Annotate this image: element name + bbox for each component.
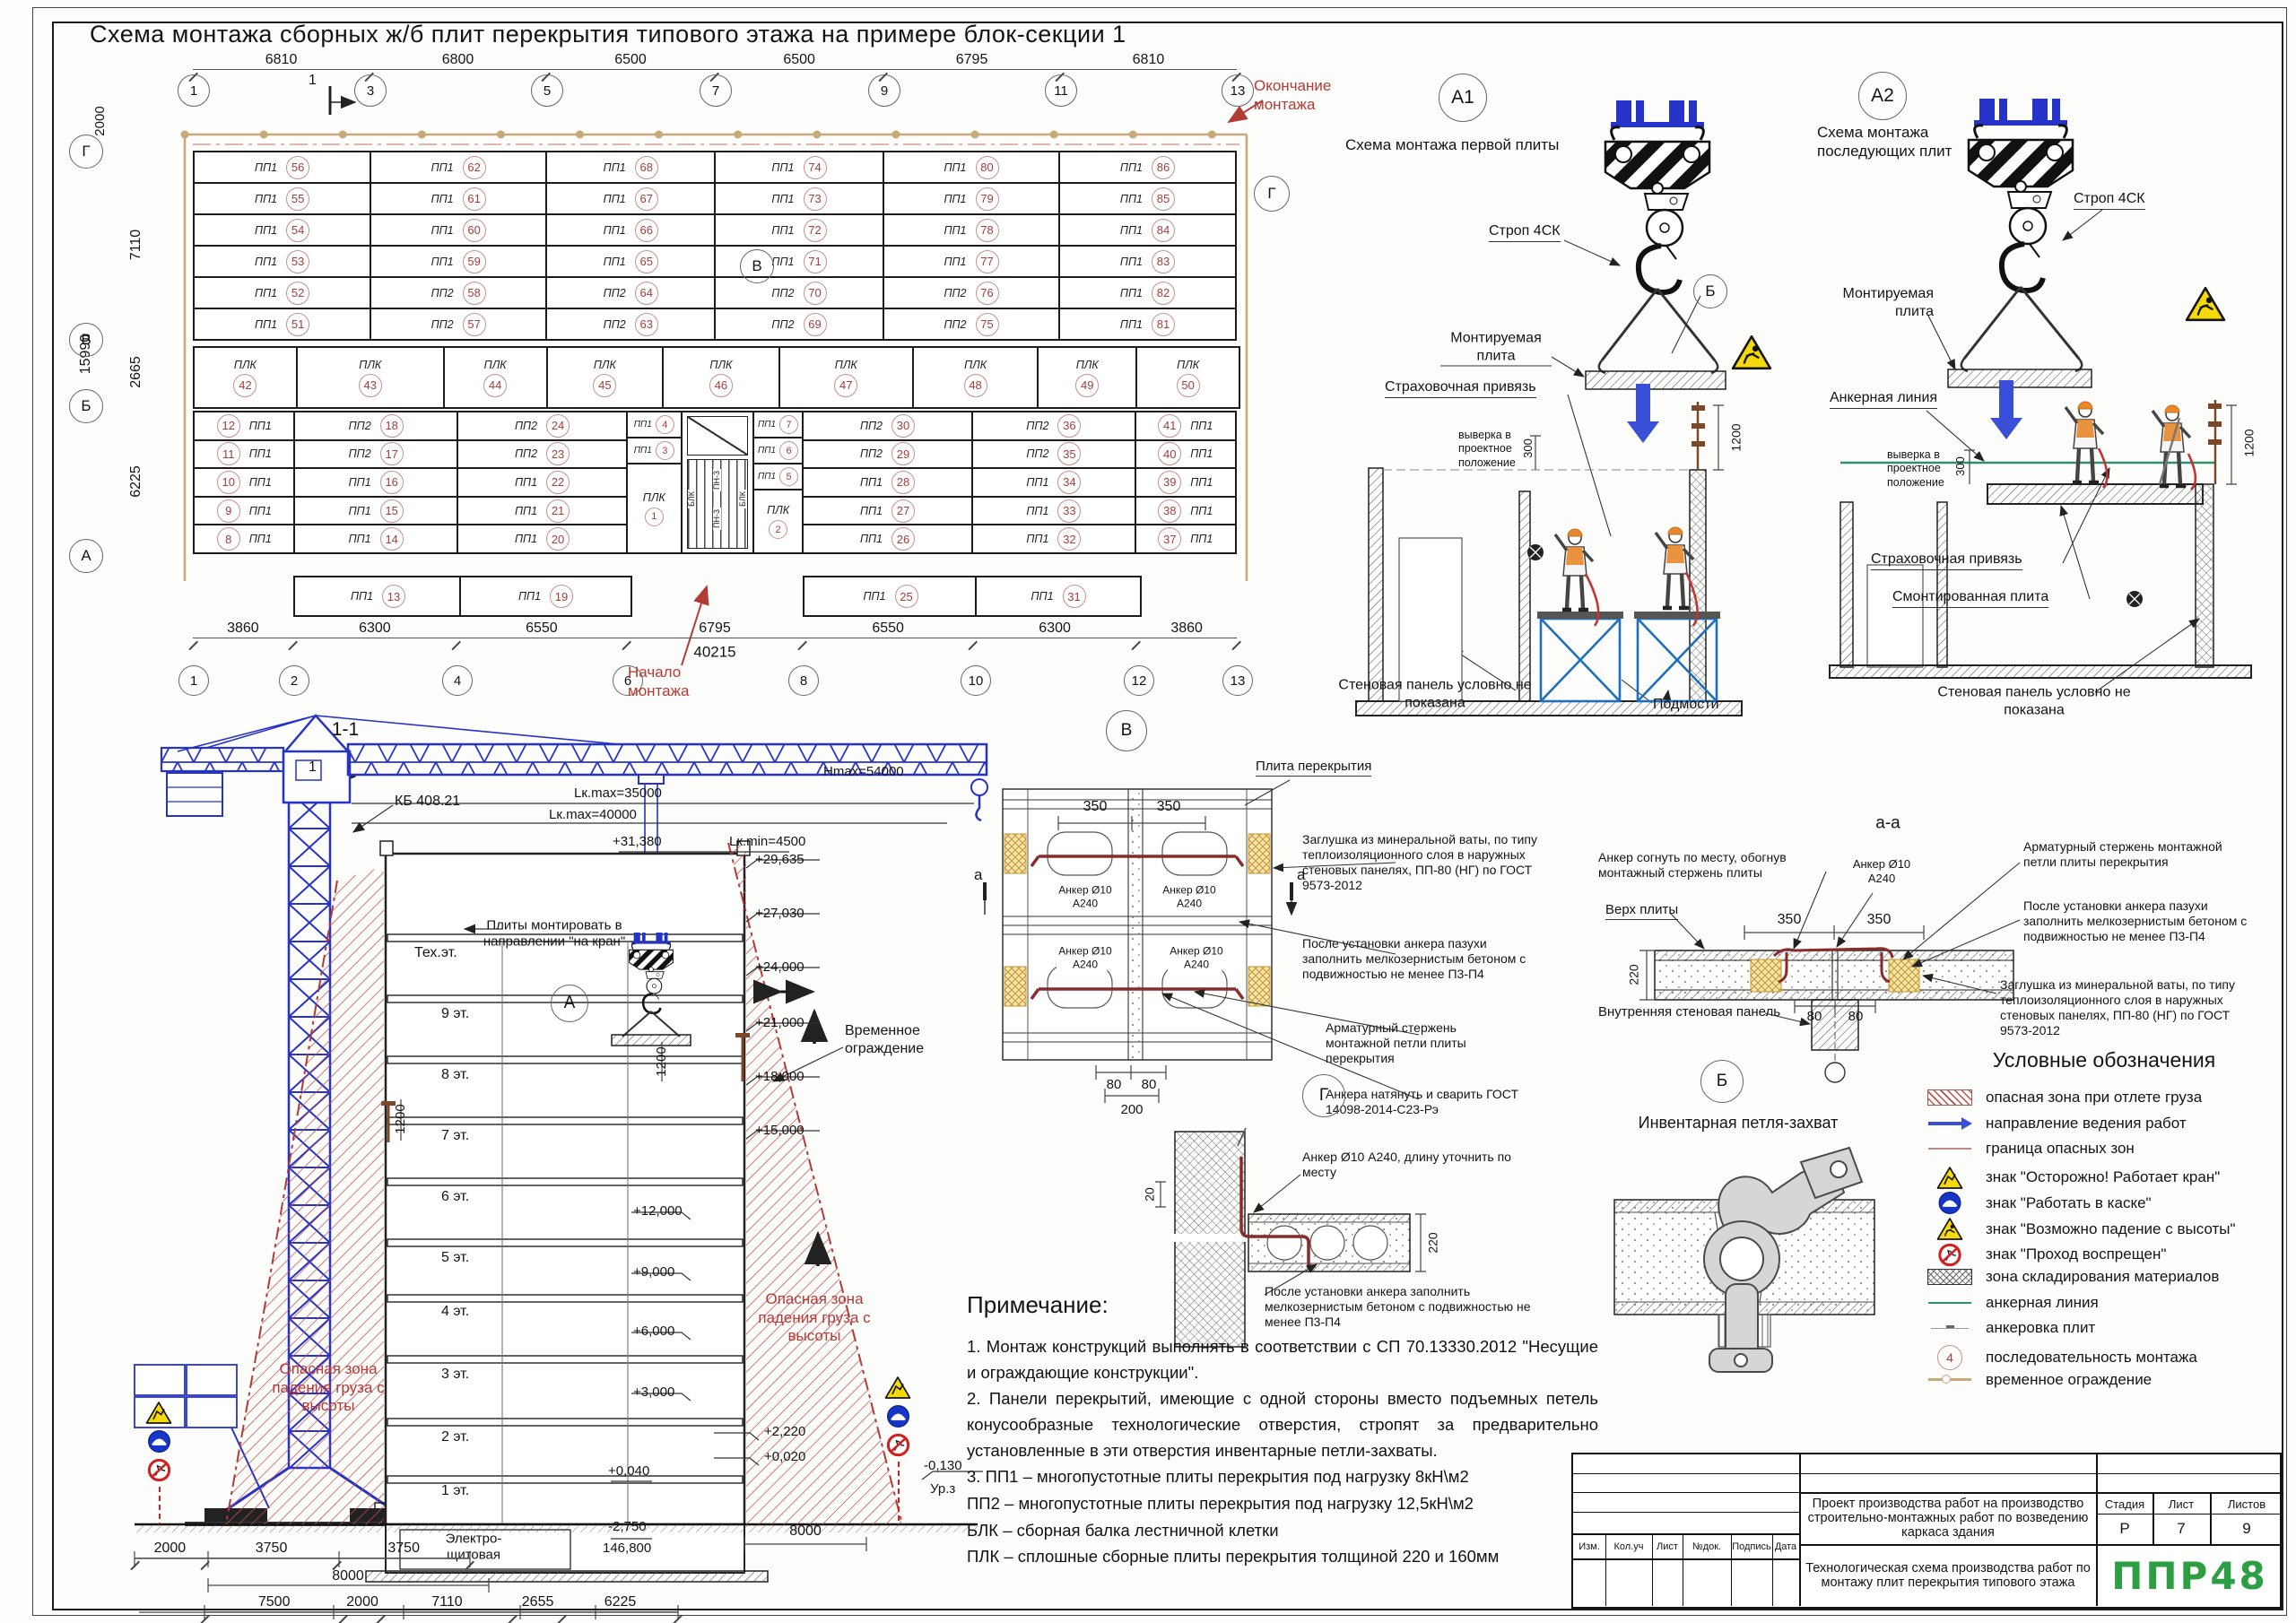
- slab-mark: ПП2: [515, 447, 537, 460]
- slab-mark: ПП1: [1120, 287, 1143, 299]
- dim-350-left: 350: [1083, 798, 1108, 816]
- legend-item: опасная зона при отлете груза: [1925, 1089, 2287, 1107]
- aa-plug-note: Заглушка из минеральной ваты, по типу те…: [2000, 977, 2244, 1038]
- revision-header: №док.: [1683, 1535, 1731, 1558]
- slab-number: 61: [463, 187, 486, 211]
- slab-mark: ПП1: [518, 590, 541, 603]
- line-red-icon: [1925, 1148, 1975, 1150]
- slab-number: 6: [779, 441, 798, 460]
- slab-strip: 41ПП1: [1136, 412, 1235, 439]
- slab-number: 64: [635, 282, 658, 305]
- slab-strip: ПП166: [547, 213, 714, 245]
- slab-number: 9: [217, 499, 240, 523]
- aa-rod-note: Арматурный стержень монтажной петли плит…: [2023, 839, 2249, 870]
- dimension: 2000: [135, 1541, 205, 1558]
- slab-strip: ПП229: [804, 439, 971, 468]
- legend-label: последовательность монтажа: [1986, 1349, 2197, 1367]
- a1-dim-300: 300: [1521, 438, 1535, 458]
- elevation-right: +18,000: [755, 1069, 804, 1085]
- aa-dim-350-left: 350: [1778, 911, 1802, 929]
- slab-number: 69: [804, 313, 827, 336]
- plan-top-column: ПП168ПП167ПП166ПП165ПП264ПП263: [545, 151, 716, 341]
- elevation-inner: +9,000: [633, 1264, 674, 1280]
- legend-label: анкерная линия: [1986, 1294, 2099, 1312]
- slab-strip: ПП131: [977, 585, 1140, 608]
- anchor-label-1: Анкер Ø10 А240: [1057, 883, 1114, 909]
- slab-number: 51: [286, 313, 309, 336]
- slab-strip: 37ПП1: [1136, 524, 1235, 552]
- a2-mounted-label: Смонтированная плита: [1892, 588, 2048, 608]
- slab-strip: ПП178: [884, 213, 1059, 245]
- row-bubble-g: Г: [69, 135, 103, 169]
- section-dims-row2: 75002000711026556225: [204, 1594, 678, 1612]
- slab-number: 55: [286, 187, 309, 211]
- slab-mark: ПП2: [431, 318, 454, 331]
- slab-number: 18: [380, 414, 404, 438]
- drawing-sheet: Схема монтажа сборных ж/б плит перекрыти…: [0, 0, 2296, 1623]
- plan-bottom-column: ПП236ПП235ПП134ПП133ПП132: [971, 411, 1136, 554]
- a2-harness-label: Страховочная привязь: [1871, 551, 2022, 570]
- plk-cell: ПЛК50: [1135, 348, 1239, 407]
- slab-number: 79: [976, 187, 999, 211]
- cut-mark-top: 1: [309, 72, 317, 90]
- finish-mounting-label: Окончание монтажа: [1254, 77, 1370, 114]
- slab-strip: 12ПП1: [195, 412, 293, 439]
- fence-dim-left: 1200: [393, 1104, 409, 1133]
- legend-item: знак "Работать в каске": [1925, 1191, 2287, 1215]
- slab-number: 5: [779, 467, 798, 486]
- slab-number: 54: [286, 219, 309, 242]
- section-ref-a: А: [551, 985, 588, 1022]
- legend-label: временное ограждение: [1986, 1371, 2152, 1389]
- node-v-bubble: В: [1106, 710, 1147, 751]
- grid-bubble: 12: [1124, 665, 1154, 696]
- plk-mark: ПЛК: [484, 359, 507, 371]
- elevation-right: +29,635: [755, 852, 804, 868]
- jib-elevation: +31,380: [613, 834, 662, 850]
- legend-item: 4последовательность монтажа: [1925, 1345, 2287, 1370]
- slab-mark: ПП1: [1120, 256, 1143, 268]
- slab-strip: ПП126: [804, 524, 971, 552]
- plk-cell: ПЛК48: [912, 348, 1037, 407]
- grid-bubble: 1: [178, 74, 210, 107]
- slab-number: 66: [635, 219, 658, 242]
- plk-cell: ПЛК43: [296, 348, 443, 407]
- note-plug-v: Заглушка из минеральной ваты, по типу те…: [1302, 832, 1543, 893]
- slab-number: 85: [1152, 187, 1175, 211]
- slab-mark: ПП1: [604, 256, 626, 268]
- legend-item: направление ведения работ: [1925, 1115, 2287, 1133]
- legend-item: зона складирования материалов: [1925, 1268, 2287, 1286]
- slab-number: 11: [217, 442, 240, 465]
- slab-mark: ПП1: [249, 505, 272, 517]
- legend-item: знак "Возможно падение с высоты": [1925, 1217, 2287, 1241]
- slab-strip: ПП236: [973, 412, 1135, 439]
- mount-direction-note: Плиты монтировать в направлении "на кран…: [465, 918, 644, 951]
- slab-strip: 8ПП1: [195, 524, 293, 552]
- note-line: 1. Монтаж конструкций выполнять в соотве…: [967, 1334, 1598, 1385]
- dimension: 3750: [337, 1541, 470, 1558]
- dimension: 6500: [546, 52, 715, 69]
- anchor-label-4: Анкер Ø10 А240: [1168, 944, 1225, 970]
- slab-mark: ПП1: [771, 256, 794, 268]
- slab-strip: ПП184: [1060, 213, 1235, 245]
- plan-dim-left-2: 2665: [127, 356, 145, 388]
- slab-number: 41: [1158, 414, 1181, 438]
- plan-total-dim: 40215: [693, 644, 735, 663]
- slab-mark: ПП1: [431, 256, 454, 268]
- elevation-right: +21,000: [755, 1015, 804, 1031]
- floor-label: 2 эт.: [441, 1428, 469, 1446]
- slab-number: 52: [286, 282, 309, 305]
- slab-number: 60: [463, 219, 486, 242]
- below-slab-cell: ПП125: [803, 576, 978, 617]
- plan-plk-band: ПЛК42ПЛК43ПЛК44ПЛК45ПЛК46ПЛК47ПЛК48ПЛК49…: [193, 346, 1240, 409]
- slab-strip: ПП15: [754, 464, 802, 490]
- grid-bubble: 7: [700, 74, 732, 107]
- plk-number: 50: [1177, 374, 1200, 397]
- plk-mark: ПЛК: [234, 359, 257, 371]
- notes-title: Примечание:: [967, 1291, 1109, 1320]
- title-block: Изм.Кол.учЛист№док.ПодписьДата Проект пр…: [1571, 1453, 2282, 1609]
- grid-bubble: 5: [531, 74, 563, 107]
- slab-label: Плита перекрытия: [1256, 759, 1371, 777]
- slab-number: 7: [779, 415, 798, 434]
- elevation-fence: +2,220: [764, 1424, 805, 1440]
- a2-wall-note: Стеновая панель условно не показана: [1909, 683, 2160, 718]
- node-b-drawing: [1614, 1148, 1874, 1372]
- slab-mark: ПП1: [431, 193, 454, 205]
- g-anchor-note: Анкер Ø10 А240, длину уточнить по месту: [1302, 1150, 1544, 1180]
- slab-number: 27: [891, 499, 915, 523]
- slab-strip: ПП121: [458, 496, 626, 525]
- slab-mark: ПП1: [349, 533, 371, 545]
- plk-cell: ПЛК45: [546, 348, 663, 407]
- sign-fall-icon: [1925, 1217, 1975, 1241]
- plk-cell: ПЛК42: [195, 348, 296, 407]
- slab-mark: ПП1: [1120, 193, 1143, 205]
- slab-mark: ПП1: [1120, 224, 1143, 237]
- sheets-header: Листов: [2212, 1494, 2282, 1514]
- slab-number: 74: [804, 156, 827, 179]
- dimension: 7500: [204, 1594, 344, 1611]
- legend-label: опасная зона при отлете груза: [1986, 1089, 2202, 1107]
- dimension: 6300: [973, 621, 1136, 638]
- a1-align-note: выверка в проектное положение: [1458, 429, 1552, 470]
- sign-noentry-icon: [1925, 1243, 1975, 1267]
- slab-number: 67: [635, 187, 658, 211]
- slab-number: 31: [1063, 585, 1086, 608]
- slab-strip: 40ПП1: [1136, 439, 1235, 468]
- elev-basement: -2,750: [608, 1519, 647, 1535]
- legend-item: временное ограждение: [1925, 1371, 2287, 1389]
- floor-label: 7 эт.: [441, 1127, 469, 1145]
- anchor-label-2: Анкер Ø10 А240: [1161, 883, 1218, 909]
- slab-strip: ПП263: [547, 308, 714, 339]
- company-logo: ППР48: [2098, 1546, 2282, 1605]
- slab-mark: ПП1: [771, 193, 794, 205]
- slab-number: 57: [463, 313, 486, 336]
- slab-strip: ПП115: [295, 496, 457, 525]
- g-fill-note: После установки анкера заполнить мелкозе…: [1265, 1284, 1534, 1330]
- slab-number: 30: [891, 414, 915, 438]
- slab-strip: ПП162: [371, 152, 546, 182]
- grid-bubble: 11: [1045, 74, 1077, 107]
- slab-number: 62: [463, 156, 486, 179]
- slab-number: 40: [1158, 442, 1181, 465]
- grid-bubble: 13: [1222, 665, 1253, 696]
- slab-mark: ПП1: [604, 161, 626, 174]
- plk-cell: ПЛК44: [443, 348, 546, 407]
- slab-number: 23: [546, 442, 570, 465]
- slab-number: 58: [463, 282, 486, 305]
- plan-bottom-column: ПП230ПП229ПП128ПП127ПП126: [802, 411, 973, 554]
- plk-cell: ПЛК46: [662, 348, 778, 407]
- slab-mark: ПП2: [515, 420, 537, 432]
- stair-shaft: [687, 416, 748, 456]
- g-dim-20: 20: [1142, 1187, 1157, 1202]
- plk-number: 42: [233, 374, 257, 397]
- plk-mark: ПЛК: [835, 359, 857, 371]
- dimension: 6810: [193, 52, 370, 69]
- dimension: 3750: [205, 1541, 338, 1558]
- legend-label: знак "Работать в каске": [1986, 1194, 2152, 1212]
- slab-strip: ПП217: [295, 439, 457, 468]
- slab-mark: ПП1: [604, 224, 626, 237]
- slab-mark: ПП1: [771, 224, 794, 237]
- jib-length-1: Lк.max=35000: [574, 785, 662, 802]
- slab-strip: ПП155: [195, 182, 370, 213]
- legend-label: направление ведения работ: [1986, 1115, 2187, 1133]
- arrow-blue-icon: [1925, 1122, 1975, 1125]
- elevation-right: +27,030: [755, 906, 804, 922]
- slab-number: 22: [546, 471, 570, 494]
- slab-number: 28: [891, 471, 915, 494]
- a1-title: Схема монтажа первой плиты: [1345, 136, 1559, 155]
- dimension: 6550: [803, 621, 973, 638]
- slab-strip: ПП258: [371, 276, 546, 308]
- row-bubble-b: Б: [69, 389, 103, 423]
- slab-mark: ПП2: [349, 420, 371, 432]
- plk-number: 49: [1075, 374, 1099, 397]
- slab-number: 83: [1152, 250, 1175, 273]
- slab-mark: ПП1: [1190, 420, 1213, 432]
- slab-mark: ПП1: [944, 256, 966, 268]
- slab-strip: ПП173: [716, 182, 883, 213]
- elevation-inner: +3,000: [633, 1384, 674, 1401]
- plk-mark: ПЛК: [643, 491, 665, 504]
- legend-label: знак "Возможно падение с высоты": [1986, 1220, 2236, 1238]
- row-bubble-v: В: [69, 323, 103, 357]
- area-value: 146,800: [603, 1541, 651, 1557]
- dim-80-left: 80: [1107, 1077, 1122, 1093]
- plan-bottom-column: ПП218ПП217ПП116ПП115ПП114: [293, 411, 458, 554]
- note-weld-v: Анкера натянуть и сварить ГОСТ 14098-201…: [1326, 1087, 1532, 1117]
- legend-title: Условные обозначения: [1993, 1047, 2216, 1072]
- slab-strip: ПП186: [1060, 152, 1235, 182]
- slab-strip: ПП276: [884, 276, 1059, 308]
- slab-number: 78: [976, 219, 999, 242]
- slab-number: 10: [217, 471, 240, 494]
- slab-strip: ПП152: [195, 276, 370, 308]
- floor-label: Тех.эт.: [414, 944, 457, 962]
- slab-strip: ПП132: [973, 524, 1135, 552]
- jib-length-min: Lк.min=4500: [729, 834, 805, 850]
- slab-number: 80: [976, 156, 999, 179]
- plan-dim-left-3: 6225: [127, 465, 145, 498]
- danger-zone-label-left: Опасная зона падения груза с высоты: [261, 1360, 396, 1416]
- slab-mark: ПП1: [255, 256, 277, 268]
- slab-number: 63: [635, 313, 658, 336]
- slab-mark: ПП2: [604, 318, 626, 331]
- slab-number: 34: [1057, 471, 1081, 494]
- plan-top-column: ПП162ПП161ПП160ПП159ПП258ПП257: [370, 151, 548, 341]
- slab-strip: ПП127: [804, 496, 971, 525]
- a2-bubble: А2: [1858, 72, 1907, 120]
- slab-number: 65: [635, 250, 658, 273]
- slab-strip: 39ПП1: [1136, 467, 1235, 496]
- below-slab-cell: ПП113: [293, 576, 463, 617]
- slab-strip: ПП230: [804, 412, 971, 439]
- dimension: 6225: [562, 1594, 678, 1611]
- legend-label: знак "Осторожно! Работает кран": [1986, 1168, 2220, 1186]
- seq-num-icon: 4: [1925, 1345, 1975, 1370]
- floor-label: 9 эт.: [441, 1005, 469, 1023]
- a2-anchor-line-label: Анкерная линия: [1830, 389, 1937, 409]
- crane-model-label: КБ 408.21: [395, 793, 460, 811]
- a2-title: Схема монтажа последующих плит: [1817, 124, 1979, 161]
- plan-bottom-column: 41ПП140ПП139ПП138ПП137ПП1: [1135, 411, 1237, 554]
- dimension: 6300: [293, 621, 457, 638]
- elev-ground: -0,130: [924, 1458, 962, 1474]
- slab-number: 33: [1057, 499, 1081, 523]
- slab-mark: ПП1: [771, 161, 794, 174]
- slab-number: 14: [380, 527, 404, 551]
- slab-strip: ПП235: [973, 439, 1135, 468]
- stage-value: Р: [2098, 1514, 2152, 1544]
- plk-number: 43: [359, 374, 382, 397]
- node-b-label: Инвентарная петля-захват: [1639, 1114, 1839, 1133]
- grid-bubble: 8: [788, 665, 819, 696]
- slab-number: 26: [891, 527, 915, 551]
- slab-mark: ПП1: [758, 472, 776, 482]
- dimension: 6550: [457, 621, 627, 638]
- stair-column: ПП14ПП13ПЛК1БЛКБЛКПН-3ПН-3ПП17ПП16ПП15ПЛ…: [626, 411, 804, 554]
- slab-mark: ПП1: [863, 590, 885, 603]
- slab-strip: ПП128: [804, 467, 971, 496]
- legend-item: анкерная линия: [1925, 1294, 2287, 1312]
- slab-number: 13: [382, 585, 405, 608]
- note-line: 2. Панели перекрытий, имеющие с одной ст…: [967, 1386, 1598, 1463]
- slab-mark: ПП1: [255, 161, 277, 174]
- elevation-inner: +6,000: [633, 1324, 674, 1340]
- plk-number: 2: [769, 520, 787, 539]
- line-green-icon: [1925, 1302, 1975, 1305]
- a1-sling-label: Строп 4СК: [1489, 222, 1561, 242]
- slab-mark: ПП1: [860, 505, 883, 517]
- slab-number: 8: [217, 527, 240, 551]
- plk-number: 47: [834, 374, 857, 397]
- start-mounting-label: Начало монтажа: [628, 664, 717, 700]
- slab-strip: ПП156: [195, 152, 370, 182]
- plk-number: 46: [709, 374, 733, 397]
- legend-item: анкеровка плит: [1925, 1319, 2287, 1337]
- slab-strip: ПП160: [371, 213, 546, 245]
- slab-mark: ПП2: [771, 318, 794, 331]
- sheets-value: 9: [2212, 1514, 2282, 1544]
- slab-strip: ПП179: [884, 182, 1059, 213]
- slab-mark: ПП1: [604, 193, 626, 205]
- legend-item: знак "Осторожно! Работает кран": [1925, 1166, 2287, 1190]
- grid-bubble: 13: [1222, 74, 1254, 107]
- slab-strip: ПП257: [371, 308, 546, 339]
- slab-mark: ПП1: [1190, 447, 1213, 460]
- slab-number: 17: [380, 442, 404, 465]
- slab-mark: ПП1: [634, 446, 652, 456]
- slab-number: 32: [1057, 527, 1081, 551]
- floor-label: 6 эт.: [441, 1188, 469, 1206]
- anchor-label-3: Анкер Ø10 А240: [1057, 944, 1114, 970]
- slab-strip: 9ПП1: [195, 496, 293, 525]
- plk-mark: ПЛК: [964, 359, 987, 371]
- project-name: Проект производства работ на производств…: [1803, 1494, 2093, 1542]
- row-bubble-a: А: [69, 539, 103, 573]
- slab-mark: ПП1: [515, 533, 537, 545]
- slab-strip: ПП270: [716, 276, 883, 308]
- slab-strip: ПП153: [195, 245, 370, 276]
- slab-mark: ПП2: [944, 287, 966, 299]
- dimension: 7110: [381, 1594, 513, 1611]
- slab-strip: ПП218: [295, 412, 457, 439]
- slab-number: 24: [546, 414, 570, 438]
- dim-80-right: 80: [1142, 1077, 1157, 1093]
- revision-header: Изм.: [1573, 1535, 1605, 1558]
- slab-mark: ПП1: [1026, 533, 1048, 545]
- dimension: 2000: [344, 1594, 380, 1611]
- slab-number: 15: [380, 499, 404, 523]
- slab-mark: ПП1: [1120, 318, 1143, 331]
- blk-label: БЛК: [688, 490, 696, 508]
- slab-strip: ПП177: [884, 245, 1059, 276]
- dimension: 3860: [1136, 621, 1237, 638]
- floor-label: 1 эт.: [441, 1482, 469, 1500]
- slab-number: 77: [976, 250, 999, 273]
- slab-strip: ПП16: [754, 438, 802, 464]
- slab-number: 29: [891, 442, 915, 465]
- slab-strip: ПП224: [458, 412, 626, 439]
- slab-strip: ПП161: [371, 182, 546, 213]
- grid-bubble: 9: [868, 74, 900, 107]
- slab-strip: ПП13: [628, 438, 681, 464]
- revision-header: Лист: [1652, 1535, 1683, 1558]
- a1-scaffold-label: Подмости: [1653, 696, 1719, 714]
- note-rod-v: Арматурный стержень монтажной петли плит…: [1326, 1020, 1505, 1066]
- pn-label: ПН-3: [713, 469, 721, 491]
- dim-200: 200: [1120, 1102, 1143, 1118]
- legend: Условные обозначения опасная зона при от…: [1925, 1047, 2287, 1388]
- slab-strip: ПП154: [195, 213, 370, 245]
- revision-header: Подпись: [1731, 1535, 1772, 1558]
- slab-mark: ПП1: [431, 224, 454, 237]
- slab-strip: ПП113: [295, 585, 461, 608]
- slab-mark: ПП2: [944, 318, 966, 331]
- slab-mark: ПП1: [860, 533, 883, 545]
- slab-mark: ПП1: [255, 287, 277, 299]
- aa-dim-350-right: 350: [1867, 911, 1892, 929]
- slab-strip: ПП275: [884, 308, 1059, 339]
- temp-fence-label: Временное ограждение: [845, 1022, 960, 1057]
- plan-top-column: ПП156ПП155ПП154ПП153ПП152ПП151: [193, 151, 371, 341]
